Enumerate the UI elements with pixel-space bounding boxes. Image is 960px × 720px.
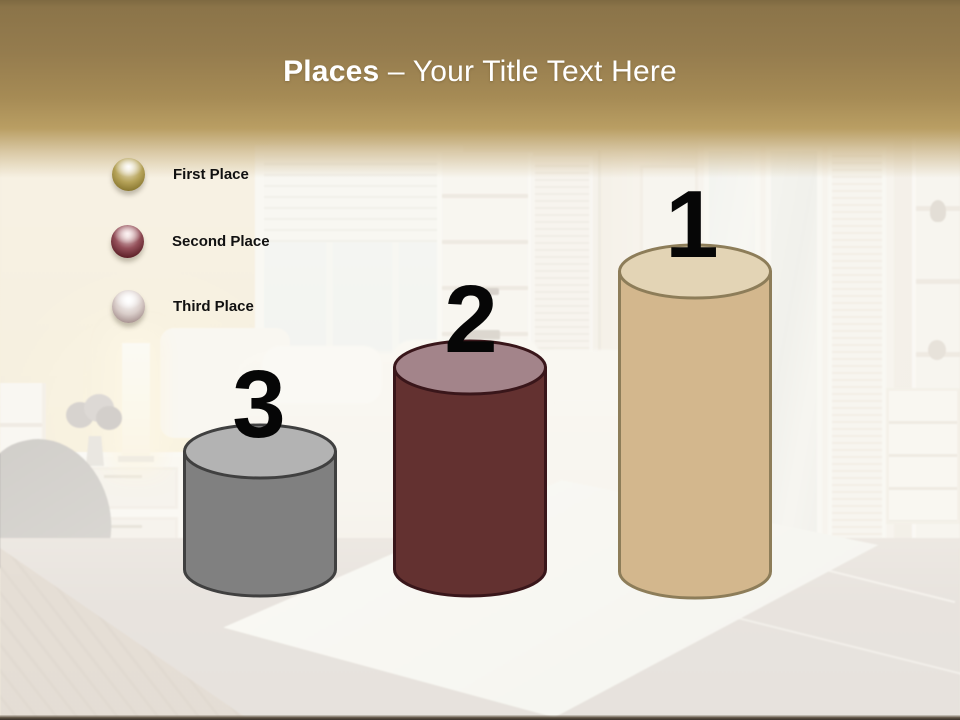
legend-item-third-place: Third Place (112, 290, 254, 323)
gold-sphere-icon (112, 158, 145, 191)
second-place-cylinder (392, 339, 548, 598)
presentation-slide: Places – Your Title Text Here First Plac… (0, 0, 960, 720)
legend-label: Third Place (173, 298, 254, 315)
cylinder-body (620, 272, 771, 599)
silver-sphere-icon (112, 290, 145, 323)
rank-number-3: 3 (188, 357, 328, 453)
rank-number-1: 1 (621, 177, 761, 273)
cylinder-body (395, 368, 546, 597)
legend-item-second-place: Second Place (111, 225, 270, 258)
header-gold-band (0, 0, 960, 178)
slide-title: Places – Your Title Text Here (0, 55, 960, 89)
bottom-edge-bar (0, 715, 960, 720)
slide-title-keyword: Places (283, 55, 379, 88)
legend-label: First Place (173, 166, 249, 183)
legend-label: Second Place (172, 233, 270, 250)
slide-title-text: Your Title Text Here (413, 55, 677, 88)
maroon-sphere-icon (111, 225, 144, 258)
slide-title-separator: – (379, 55, 412, 88)
first-place-cylinder (617, 243, 773, 600)
legend-item-first-place: First Place (112, 158, 249, 191)
rank-number-2: 2 (400, 272, 540, 368)
